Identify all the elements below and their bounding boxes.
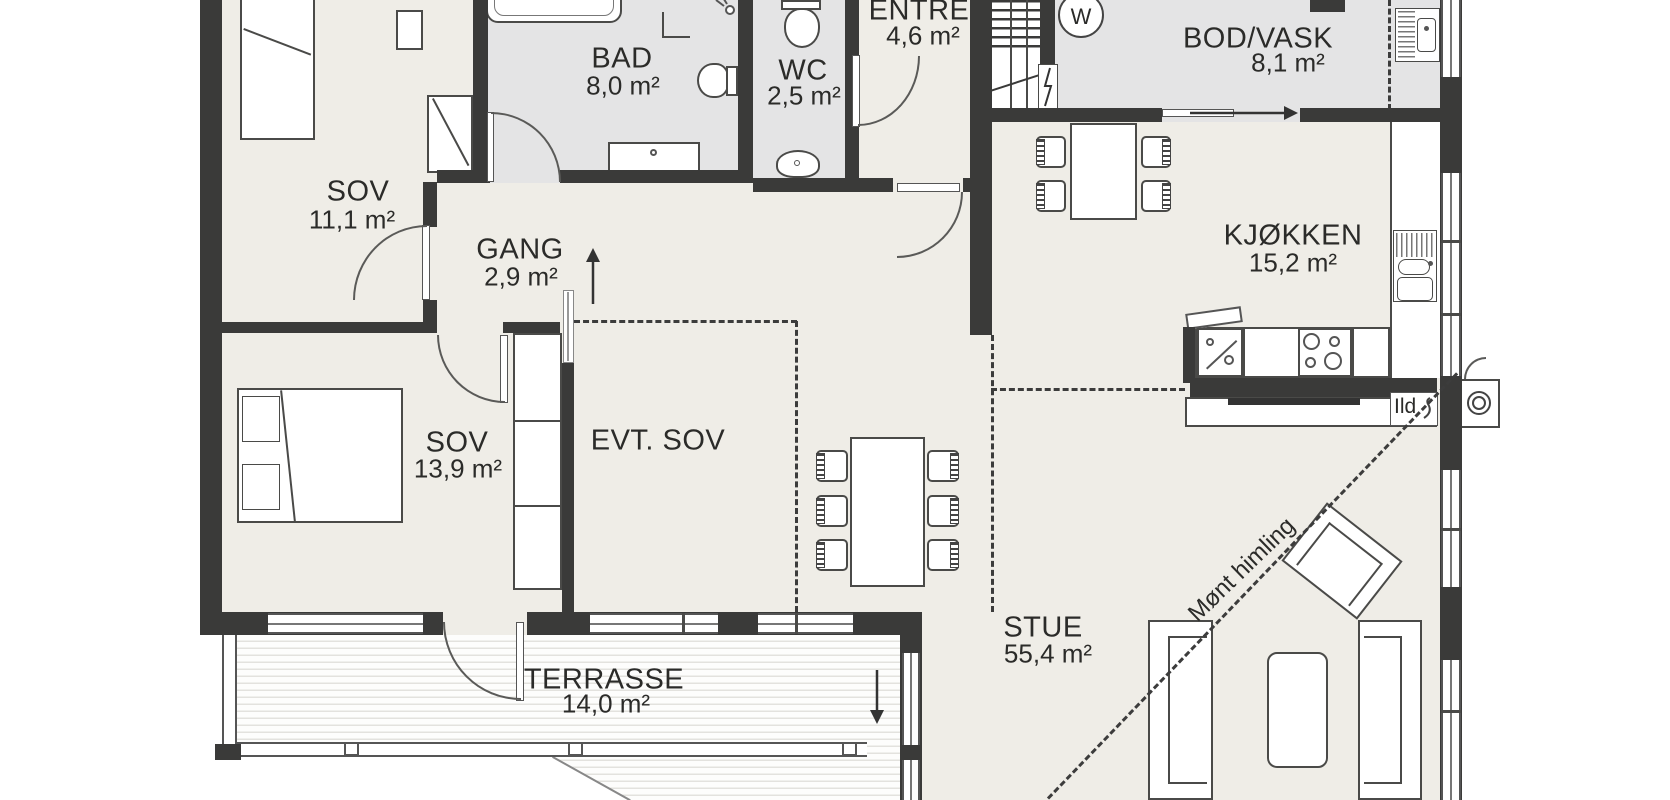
terrace-post — [842, 742, 857, 756]
burner — [1324, 352, 1342, 370]
window-mullion — [1441, 710, 1461, 713]
dashed-boundary — [574, 320, 797, 323]
chair-back — [1036, 139, 1045, 165]
wall-top-right-stub — [1310, 0, 1345, 12]
dashed-boundary — [795, 321, 798, 612]
sink-drainboard — [1396, 233, 1434, 257]
chair — [1141, 180, 1171, 212]
sink-bowl — [1397, 277, 1433, 301]
room-area-terrasse: 14,0 m² — [562, 689, 650, 720]
chair-back — [950, 542, 959, 568]
wall-bad-south — [560, 170, 753, 183]
coffee-table — [1267, 652, 1328, 768]
dashed-boundary — [991, 335, 994, 612]
stue-west-window — [902, 653, 920, 745]
wall-wc-south — [753, 178, 893, 192]
room-area-bod: 8,1 m² — [1251, 48, 1325, 79]
room-label-evtsov: EVT. SOV — [591, 425, 726, 458]
chair — [927, 495, 959, 527]
burner — [1329, 336, 1340, 347]
chair — [1141, 136, 1171, 168]
dining-table-6 — [850, 437, 925, 587]
chair-back — [950, 453, 959, 479]
sink-bowl — [1398, 259, 1430, 275]
chair — [927, 539, 959, 571]
chair — [1036, 180, 1066, 212]
counter-divider — [1352, 329, 1354, 376]
chair — [816, 539, 848, 571]
bod-sink-bowl — [1417, 18, 1436, 52]
bed-single — [240, 0, 315, 140]
dishwasher-dot — [1224, 355, 1234, 365]
toilet-bad-tank — [726, 66, 738, 96]
room-area-entre: 4,6 m² — [886, 21, 960, 52]
dashed-boundary-bod — [1388, 0, 1391, 110]
chimney-flue-inner — [1472, 396, 1486, 410]
room-area-gang: 2,9 m² — [484, 262, 558, 293]
toilet-bad — [697, 63, 729, 98]
wall-gang-west — [423, 182, 437, 227]
counter-divider — [1243, 329, 1245, 376]
bod-sink-drainboard — [1398, 11, 1415, 59]
shower-head-icon — [712, 0, 740, 18]
wall-bad-south — [437, 170, 490, 183]
dishwasher — [1197, 328, 1243, 377]
wall-bad-wc — [738, 0, 753, 183]
chair — [816, 495, 848, 527]
pillow — [242, 464, 280, 510]
entry-door-leaf — [897, 183, 960, 192]
room-area-sov2: 13,9 m² — [414, 454, 502, 485]
window — [1441, 173, 1461, 376]
sofa-seat — [1364, 636, 1402, 784]
tv — [1228, 398, 1360, 405]
stair-stringer — [1026, 0, 1028, 118]
chair-back — [816, 498, 825, 524]
sofa — [1358, 620, 1422, 800]
stue-west-window — [902, 760, 920, 800]
sofa-seat — [1168, 636, 1207, 784]
chair-back — [816, 453, 825, 479]
window-mullion — [1441, 240, 1461, 243]
entry-direction-arrow — [582, 246, 604, 308]
chair — [1036, 136, 1066, 168]
window — [758, 613, 853, 634]
wall-sov-divider — [222, 322, 437, 333]
lightning-icon — [1040, 66, 1056, 108]
closet-divider — [515, 420, 560, 422]
sink-wc-drain — [794, 160, 800, 166]
wall-stairs-east — [1040, 0, 1055, 64]
floor-plan: W — [0, 0, 1670, 800]
terrace-post-corner — [215, 744, 241, 760]
terrace-post — [568, 742, 583, 756]
wall-bod-south — [992, 108, 1162, 122]
window — [590, 613, 718, 634]
terrace-railing — [222, 742, 867, 757]
wall-left — [200, 0, 222, 635]
window-mullion — [1441, 528, 1461, 531]
chimney-hatch-arc — [1464, 357, 1486, 379]
dishwasher-dot — [1206, 338, 1214, 346]
wall-sov-divider — [503, 322, 560, 333]
pillow — [242, 396, 280, 442]
sink-faucet — [1428, 261, 1433, 266]
room-area-stue: 55,4 m² — [1004, 639, 1092, 670]
sliding-door-arrow — [1188, 104, 1300, 122]
stair-stringer — [1010, 0, 1012, 118]
dining-table-4 — [1070, 123, 1137, 220]
terrace-railing-left — [222, 633, 237, 757]
wall-evtsov-west — [562, 363, 574, 612]
burner — [1305, 357, 1316, 368]
window — [268, 613, 423, 634]
room-area-wc: 2,5 m² — [767, 81, 841, 112]
wall-counter-stub — [1183, 327, 1195, 383]
window — [1441, 660, 1461, 800]
chair — [816, 450, 848, 482]
glass-partition-line — [567, 292, 569, 361]
desk — [396, 10, 423, 50]
window — [1441, 0, 1461, 77]
wall-bad-west — [473, 0, 488, 183]
chair-back — [950, 498, 959, 524]
room-area-bad: 8,0 m² — [586, 71, 660, 102]
room-area-kjokken: 15,2 m² — [1249, 248, 1337, 279]
window-mullion — [682, 613, 685, 634]
chair-back — [1162, 183, 1171, 209]
window-mullion — [795, 613, 798, 634]
bathtub-inner — [494, 0, 614, 16]
wall-bod-south — [1300, 108, 1440, 122]
bod-sink-faucet — [1424, 26, 1429, 31]
terrace-exit-arrow — [866, 668, 888, 726]
closet-divider — [515, 505, 560, 507]
terrace-post — [344, 742, 359, 756]
terrace-cut-white — [222, 757, 553, 800]
staircase-treads — [992, 0, 1042, 52]
dashed-boundary — [991, 388, 1185, 391]
toilet-wc — [784, 8, 820, 48]
chair — [927, 450, 959, 482]
shower-corner-v — [662, 12, 664, 38]
wall-central — [970, 0, 992, 335]
chair-back — [1036, 183, 1045, 209]
chair-back — [1162, 139, 1171, 165]
shower-corner-h — [662, 36, 690, 38]
chair-back — [816, 542, 825, 568]
window-mullion — [1441, 313, 1461, 316]
vanity-faucet — [650, 149, 657, 156]
burner — [1303, 333, 1320, 350]
closet-column — [513, 333, 562, 590]
room-area-sov1: 11,1 m² — [309, 205, 395, 236]
